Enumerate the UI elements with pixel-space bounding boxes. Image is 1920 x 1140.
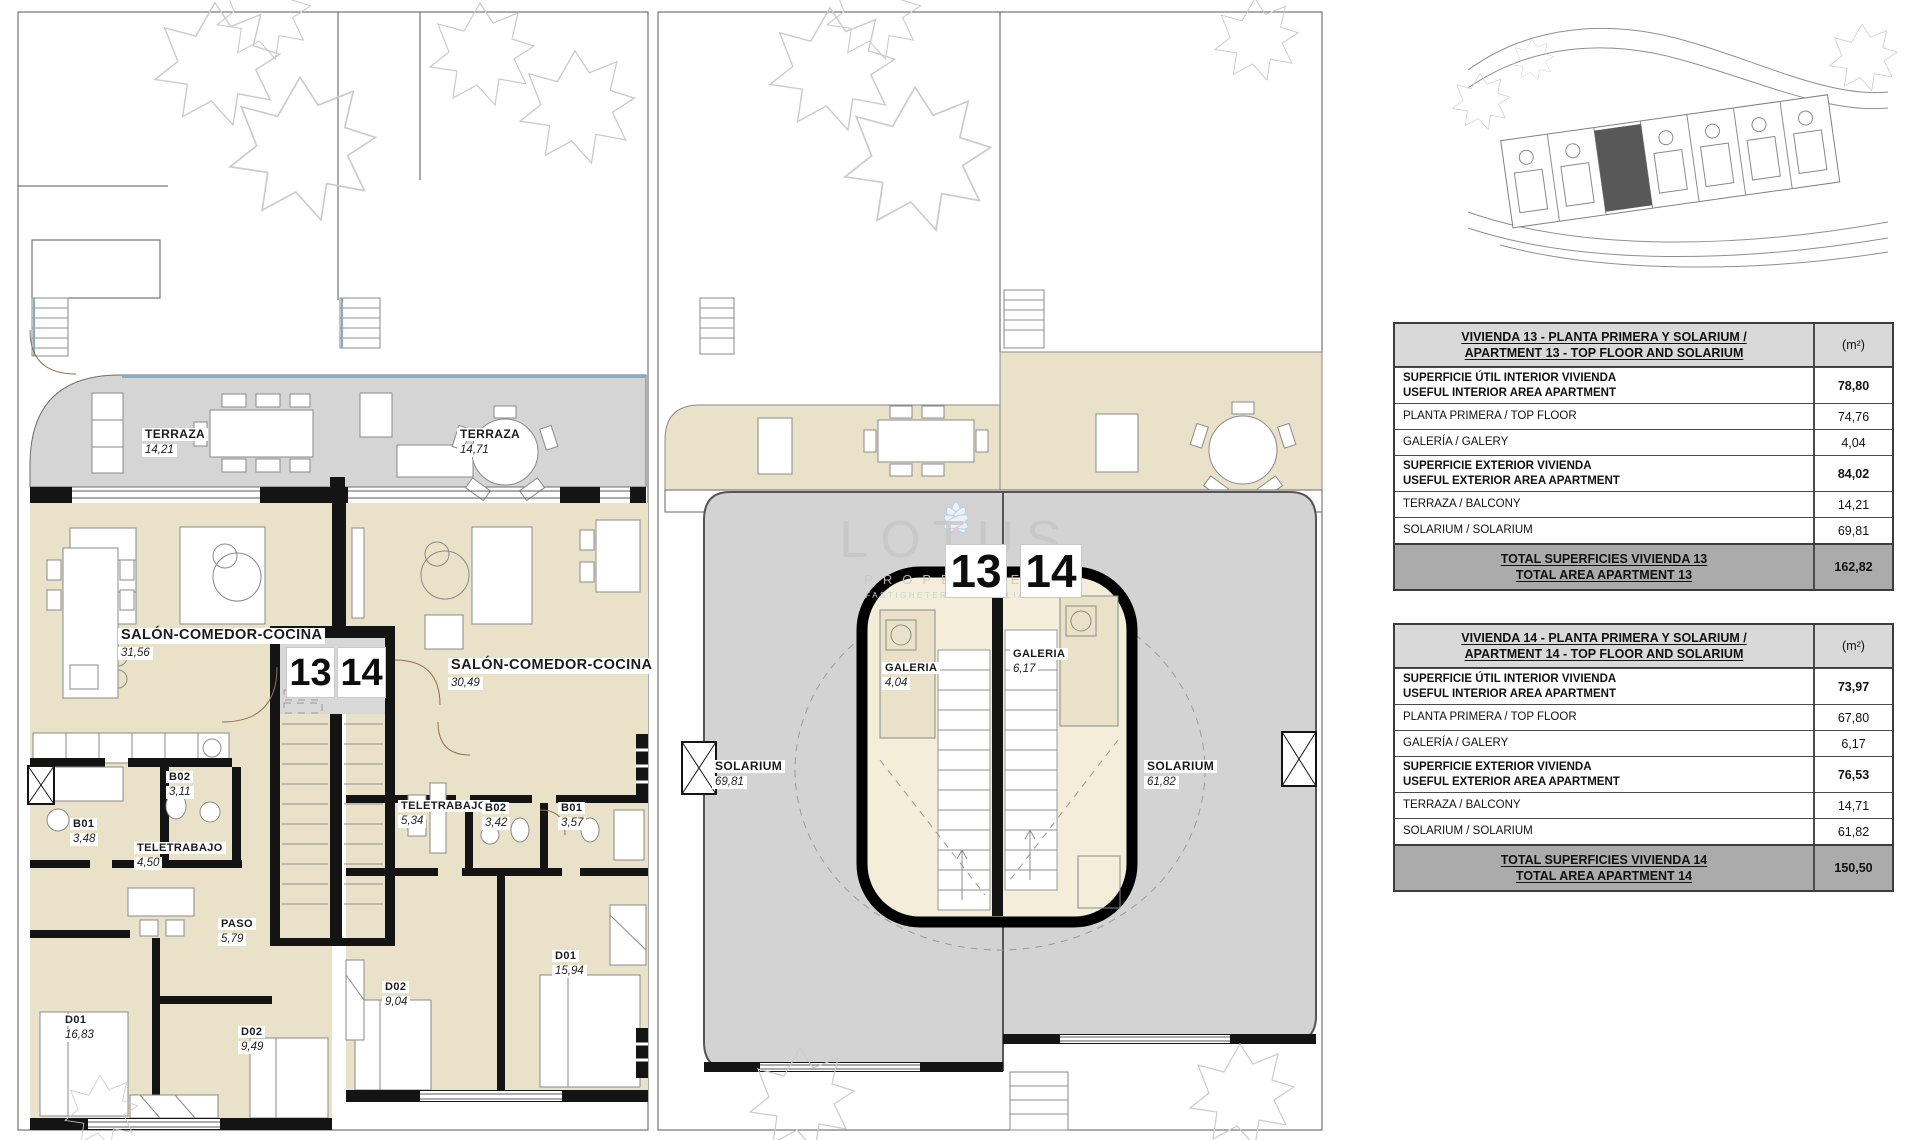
unit-number-14-level1: 14	[338, 648, 385, 697]
table-title: VIVIENDA 14 - PLANTA PRIMERA Y SOLARIUM …	[1395, 625, 1813, 667]
table-row: SUPERFICIE ÚTIL INTERIOR VIVIENDA USEFUL…	[1395, 668, 1892, 704]
table-row: GALERÍA / GALERY 4,04	[1395, 429, 1892, 455]
table-row: PLANTA PRIMERA / TOP FLOOR 67,80	[1395, 704, 1892, 730]
table-header: VIVIENDA 14 - PLANTA PRIMERA Y SOLARIUM …	[1395, 625, 1892, 668]
table-total-row: TOTAL SUPERFICIES VIVIENDA 14 TOTAL AREA…	[1395, 844, 1892, 890]
area-table-apartment-13: VIVIENDA 13 - PLANTA PRIMERA Y SOLARIUM …	[1393, 322, 1894, 591]
table-row: GALERÍA / GALERY 6,17	[1395, 730, 1892, 756]
table-row: SOLARIUM / SOLARIUM 69,81	[1395, 517, 1892, 543]
unit-number-13-level1: 13	[287, 648, 334, 697]
table-row: SUPERFICIE ÚTIL INTERIOR VIVIENDA USEFUL…	[1395, 367, 1892, 403]
unit-header: (m²)	[1813, 625, 1892, 667]
table-row: TERRAZA / BALCONY 14,71	[1395, 792, 1892, 818]
table-total-row: TOTAL SUPERFICIES VIVIENDA 13 TOTAL AREA…	[1395, 543, 1892, 589]
level1-plan-drawing	[18, 0, 648, 1140]
table-row: SOLARIUM / SOLARIUM 61,82	[1395, 818, 1892, 844]
site-building-row	[1501, 95, 1840, 228]
table-row: SUPERFICIE EXTERIOR VIVIENDA USEFUL EXTE…	[1395, 455, 1892, 491]
site-location-map	[1453, 24, 1898, 267]
table-row: TERRAZA / BALCONY 14,21	[1395, 491, 1892, 517]
table-title: VIVIENDA 13 - PLANTA PRIMERA Y SOLARIUM …	[1395, 324, 1813, 366]
floor-plan-sheet: LOTUS PROPERTIES FASTIGHETER · INMOBILIA…	[0, 0, 1920, 1140]
table-header: VIVIENDA 13 - PLANTA PRIMERA Y SOLARIUM …	[1395, 324, 1892, 367]
area-table-apartment-14: VIVIENDA 14 - PLANTA PRIMERA Y SOLARIUM …	[1393, 623, 1894, 892]
unit-header: (m²)	[1813, 324, 1892, 366]
table-row: PLANTA PRIMERA / TOP FLOOR 74,76	[1395, 403, 1892, 429]
unit-number-13-solarium: 13	[946, 545, 1006, 597]
table-row: SUPERFICIE EXTERIOR VIVIENDA USEFUL EXTE…	[1395, 756, 1892, 792]
unit-number-14-solarium: 14	[1021, 545, 1081, 597]
